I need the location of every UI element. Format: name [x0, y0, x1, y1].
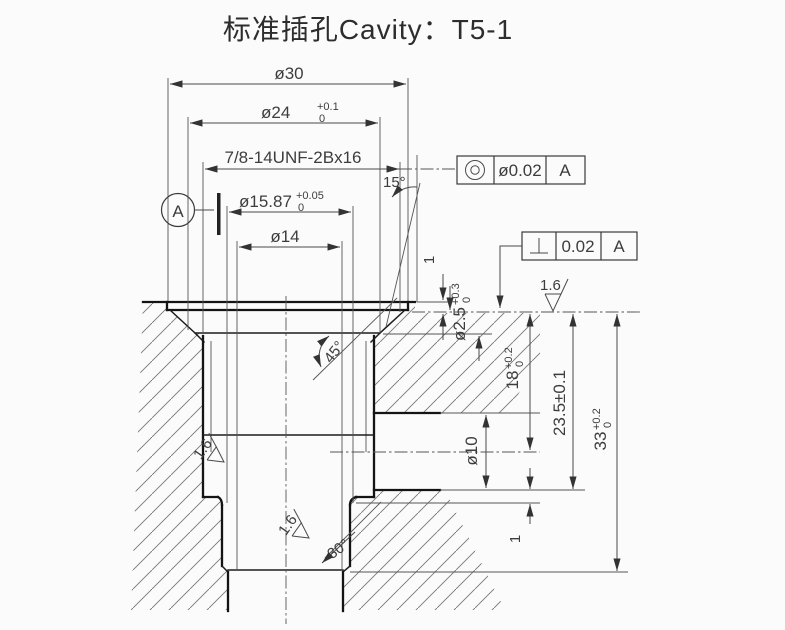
dimension-d14: ø14: [239, 227, 340, 247]
dim-d14-label: ø14: [270, 227, 299, 246]
roughness-bottom: 1.6: [275, 507, 318, 548]
datum-a: A: [162, 193, 221, 235]
fcf-concentricity: ø0.02 A: [399, 156, 585, 184]
fcf-perpendicularity-datum: A: [613, 237, 625, 256]
dimension-depth33: 33 +0.2 0: [591, 314, 617, 571]
drawing-page: 标准插孔Cavity：T5-1: [0, 0, 785, 630]
dim-depth18-main: 18: [503, 371, 522, 390]
datum-a-label: A: [172, 202, 184, 221]
dim-d30-label: ø30: [274, 64, 303, 83]
page-title: 标准插孔Cavity：T5-1: [223, 14, 513, 45]
dim-angle15-label: 15°: [383, 174, 406, 191]
roughness-top: 1.6: [540, 277, 568, 311]
dimension-thread: 7/8-14UNF-2Bx16: [205, 148, 399, 169]
fcf-perpendicularity-tolerance: 0.02: [561, 237, 594, 256]
fcf-concentricity-datum: A: [559, 161, 571, 180]
datum-bar-icon: [217, 193, 221, 235]
dim-angle30-label: 30°: [324, 536, 352, 563]
dim-thread-label: 7/8-14UNF-2Bx16: [224, 148, 361, 167]
dim-step1-bottom-label: 1: [507, 535, 524, 543]
dimension-d1587: ø15.87 +0.05 0: [229, 190, 351, 214]
dimension-d24: ø24 +0.1 0: [190, 101, 378, 125]
concentricity-icon: [466, 161, 485, 180]
dim-depth33-main: 33: [591, 432, 610, 451]
dim-d24-main: ø24: [261, 103, 290, 122]
dim-d24-sub: 0: [319, 113, 325, 125]
dim-d1587-main: ø15.87: [239, 192, 292, 211]
dim-d24-sup: +0.1: [317, 101, 339, 113]
technical-drawing: 标准插孔Cavity：T5-1: [0, 0, 785, 630]
dimension-d30: ø30: [170, 64, 406, 84]
dim-d25-main: ø2.5: [450, 307, 469, 341]
dim-d10-label: ø10: [462, 436, 481, 465]
perpendicularity-icon: [530, 238, 548, 253]
fcf-perpendicularity: 0.02 A: [500, 232, 637, 308]
dimension-depth235: 23.5±0.1: [550, 314, 573, 489]
fcf-concentricity-tolerance: ø0.02: [498, 161, 541, 180]
dim-depth18-sub: 0: [514, 361, 526, 367]
dim-depth235-label: 23.5±0.1: [550, 370, 569, 436]
dim-angle45-label: 45°: [321, 338, 348, 366]
dim-d1587-sub: 0: [298, 202, 304, 214]
dimension-d10: ø10: [462, 415, 486, 488]
dim-depth33-sub: 0: [602, 422, 614, 428]
dimension-step1-bottom: 1: [507, 468, 530, 543]
dim-d25-sub: 0: [461, 297, 473, 303]
dim-d1587-sup: +0.05: [296, 190, 324, 202]
dim-step1-top-label: 1: [421, 256, 438, 264]
roughness-top-value: 1.6: [540, 277, 561, 294]
